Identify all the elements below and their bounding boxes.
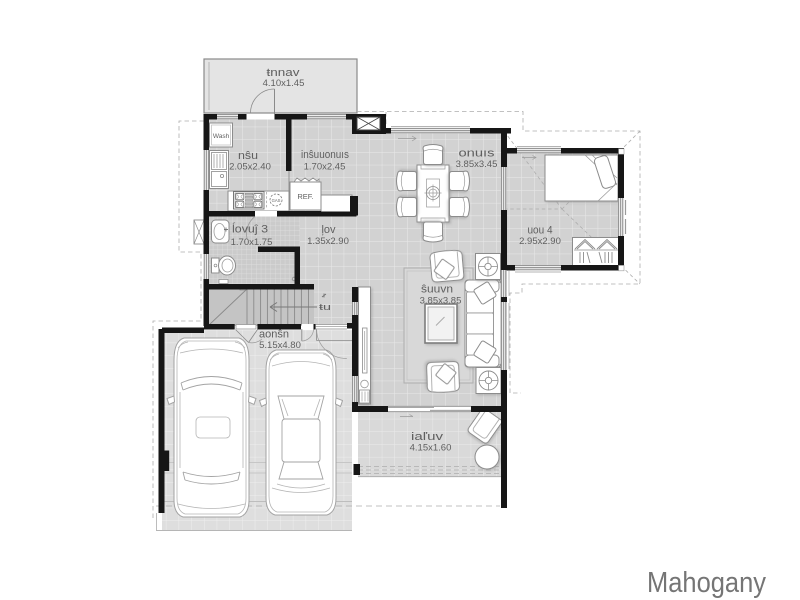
svg-text:ŧu: ŧu [319,302,331,312]
svg-text:4.15x1.60: 4.15x1.60 [410,443,452,454]
svg-text:aonŝn: aonŝn [259,329,289,341]
svg-text:onuıs: onuıs [459,148,496,160]
svg-text:Wash: Wash [213,133,230,140]
svg-text:4.10x1.45: 4.10x1.45 [263,78,305,89]
svg-text:1.70x2.45: 1.70x2.45 [304,162,346,173]
svg-text:ĺovuĵ 3: ĺovuĵ 3 [232,223,268,236]
svg-text:2.95x2.90: 2.95x2.90 [519,236,561,247]
svg-text:5.15x4.80: 5.15x4.80 [259,340,301,351]
svg-text:1.70x1.75: 1.70x1.75 [231,237,273,248]
svg-text:inŝuuonuıs: inŝuuonuıs [301,149,349,161]
svg-text:REF.: REF. [297,192,313,201]
svg-text:ŝuuvn: ŝuuvn [421,284,453,296]
svg-text:nŝu: nŝu [238,150,258,162]
svg-text:GAS: GAS [272,198,281,203]
svg-text:ļov: ļov [322,224,336,236]
svg-text:Mahogany: Mahogany [647,567,766,599]
svg-text:uou 4: uou 4 [528,225,553,237]
svg-text:2.05x2.40: 2.05x2.40 [229,162,271,173]
svg-text:3.85x3.45: 3.85x3.45 [456,159,498,170]
svg-text:1.35x2.90: 1.35x2.90 [307,236,349,247]
svg-text:iaľuv: iaľuv [411,431,444,443]
svg-text:3.85x3.85: 3.85x3.85 [420,296,462,307]
